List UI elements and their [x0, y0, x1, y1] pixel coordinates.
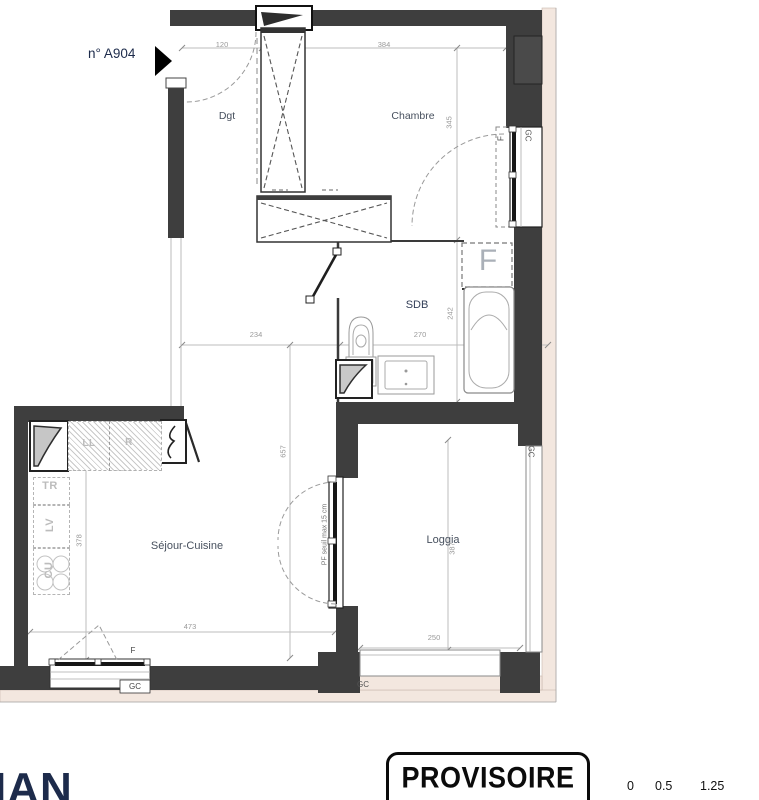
- room-label-sdb: SDB: [400, 299, 434, 311]
- dim-chambre-width: 384: [372, 40, 396, 49]
- room-label-chambre: Chambre: [385, 110, 441, 122]
- dim-chambre-depth: 345: [445, 105, 454, 141]
- dim-loggia-width: 250: [420, 633, 448, 642]
- closet-horizontal: [257, 196, 391, 242]
- sejour-window-swing: [58, 625, 117, 660]
- provisoire-stamp: PROVISOIRE: [386, 752, 590, 800]
- dim-corridor-width: 234: [242, 330, 270, 339]
- kitchen-label-cu: CU: [43, 556, 55, 584]
- sdb-door-leaf: [311, 253, 337, 300]
- loggia-railing-bottom: [360, 650, 500, 676]
- kitchen-label-tr: TR: [36, 480, 64, 492]
- counter-divider: [109, 421, 110, 471]
- room-label-sejour: Séjour-Cuisine: [147, 540, 227, 552]
- room-label-dgt: Dgt: [212, 110, 242, 122]
- unit-label: n° A904: [88, 46, 135, 61]
- bathtub: [464, 287, 514, 393]
- closets: [257, 28, 391, 242]
- dim-sejour-width: 473: [176, 622, 204, 631]
- sejour-window-gc-mark: GC: [121, 682, 149, 691]
- kitchen-label-r: R: [120, 437, 138, 448]
- loggia-gc-mark: GC: [527, 440, 536, 464]
- dim-loggia-depth: 387: [448, 531, 457, 567]
- dim-entry-width: 120: [210, 40, 234, 49]
- sejour-door-leaf: [186, 423, 199, 462]
- sejour-window-f-mark: F: [126, 646, 140, 655]
- company-logo: IAN: [0, 764, 73, 800]
- pf-threshold-note: PF seuil max 15 cm: [322, 480, 329, 590]
- scale-tick-05: 0.5: [655, 779, 672, 793]
- scale-tick-125: 1.25: [700, 779, 724, 793]
- dim-apartment-depth: 657: [279, 434, 288, 470]
- loggia-bottom-gc-mark: GC: [357, 680, 381, 689]
- entry-arrow-icon: [155, 46, 172, 76]
- dim-sdb-width: 270: [406, 330, 434, 339]
- kitchen-label-lv: LV: [44, 511, 56, 539]
- dim-kitchen-depth: 378: [75, 523, 84, 559]
- entry-threshold: [166, 78, 186, 88]
- chambre-window-swing: [412, 134, 504, 226]
- floor-plan-page: n° A904 Dgt Chambre SDB Séjour-Cuisine L…: [0, 0, 759, 800]
- kitchen-label-ll: LL: [78, 438, 100, 449]
- window-gc-mark: GC: [524, 124, 533, 148]
- window-f-mark: F: [497, 127, 506, 151]
- sdb-f-mark: F: [468, 244, 508, 278]
- room-label-loggia: Loggia: [419, 534, 467, 546]
- scale-tick-0: 0: [627, 779, 634, 793]
- dim-sdb-depth: 242: [446, 296, 455, 332]
- stamp-text: PROVISOIRE: [401, 762, 574, 795]
- loggia-railing-right: [526, 446, 542, 652]
